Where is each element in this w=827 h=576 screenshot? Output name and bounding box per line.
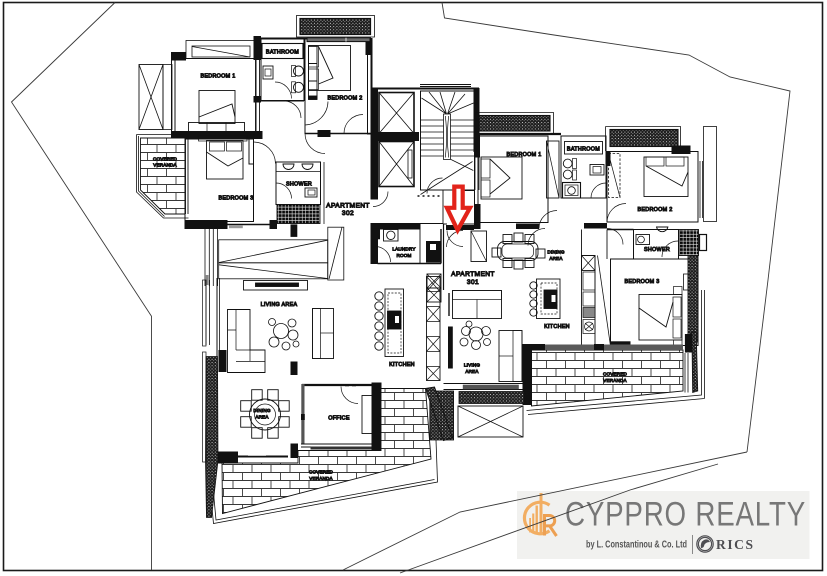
svg-text:APARTMENT: APARTMENT bbox=[451, 271, 495, 278]
svg-text:LIVING: LIVING bbox=[464, 363, 480, 368]
svg-text:SHOWER: SHOWER bbox=[286, 182, 312, 188]
svg-text:DINING: DINING bbox=[547, 250, 565, 255]
svg-text:302: 302 bbox=[342, 210, 354, 217]
svg-text:BEDROOM 3: BEDROOM 3 bbox=[218, 196, 253, 202]
svg-text:301: 301 bbox=[467, 279, 479, 286]
svg-text:VERANDA: VERANDA bbox=[309, 476, 333, 481]
svg-text:LAUNDRY: LAUNDRY bbox=[392, 247, 415, 252]
svg-text:BATHROOM: BATHROOM bbox=[266, 50, 299, 56]
svg-text:BEDROOM 2: BEDROOM 2 bbox=[637, 207, 672, 213]
svg-text:SHOWER: SHOWER bbox=[644, 247, 670, 253]
svg-text:VERANDA: VERANDA bbox=[153, 163, 177, 168]
svg-text:KITCHEN: KITCHEN bbox=[544, 324, 570, 330]
svg-text:BEDROOM 2: BEDROOM 2 bbox=[327, 96, 362, 102]
svg-text:CYPPRO REALTY: CYPPRO REALTY bbox=[565, 496, 806, 534]
svg-text:AREA: AREA bbox=[549, 256, 563, 261]
svg-text:KITCHEN: KITCHEN bbox=[389, 362, 415, 368]
svg-text:COVERED: COVERED bbox=[603, 372, 628, 377]
svg-text:by L. Constantinou & Co. Ltd: by L. Constantinou & Co. Ltd bbox=[586, 540, 687, 551]
svg-text:ROOM: ROOM bbox=[396, 253, 411, 258]
svg-text:LIVING AREA: LIVING AREA bbox=[261, 302, 298, 308]
svg-text:AREA: AREA bbox=[255, 415, 269, 420]
svg-text:BEDROOM 1: BEDROOM 1 bbox=[506, 152, 541, 158]
svg-text:BEDROOM 1: BEDROOM 1 bbox=[200, 74, 235, 80]
svg-text:AREA: AREA bbox=[465, 369, 479, 374]
svg-text:BATHROOM: BATHROOM bbox=[567, 147, 600, 153]
svg-text:COVERED: COVERED bbox=[309, 470, 334, 475]
svg-text:COVERED: COVERED bbox=[153, 157, 178, 162]
svg-text:DINING: DINING bbox=[253, 408, 271, 413]
svg-text:OFFICE: OFFICE bbox=[328, 416, 350, 422]
svg-text:BEDROOM 3: BEDROOM 3 bbox=[624, 279, 659, 285]
svg-text:RICS: RICS bbox=[716, 537, 753, 552]
svg-text:APARTMENT: APARTMENT bbox=[326, 203, 370, 210]
svg-text:VERANDA: VERANDA bbox=[603, 378, 627, 383]
